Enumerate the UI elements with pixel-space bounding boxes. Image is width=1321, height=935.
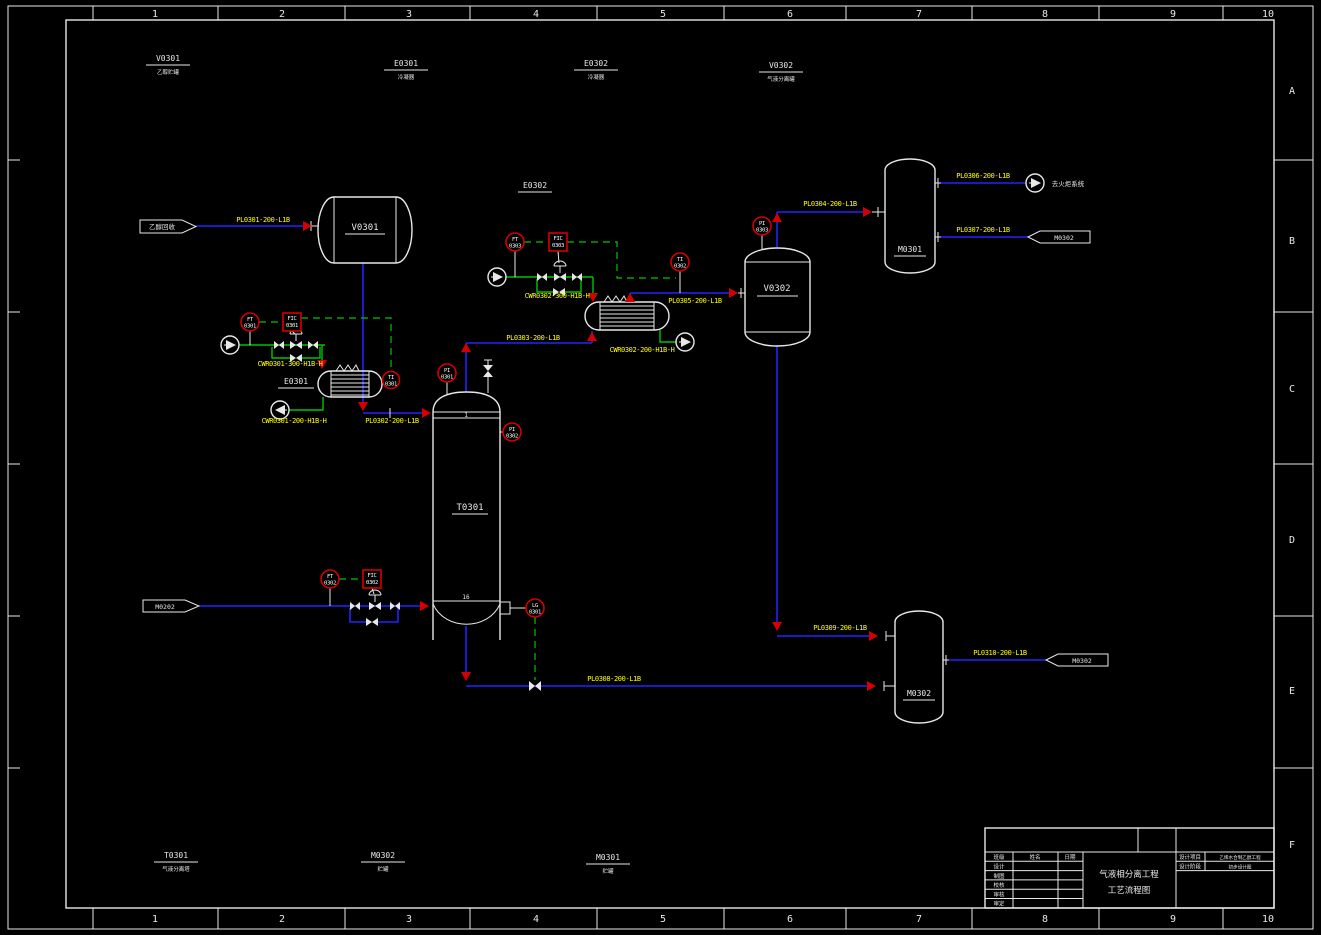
- instrument-fic0301-num: 0301: [286, 323, 298, 329]
- grid-col-label: 9: [1170, 9, 1176, 20]
- project-value: 乙烯水合制乙醇工程: [1219, 854, 1261, 861]
- index-m0301-tag: M0301: [596, 853, 620, 862]
- instrument-ti0301: TI 0301: [383, 372, 400, 389]
- grid-col-label: 7: [916, 914, 922, 925]
- titleblock-row-label: 制图: [993, 872, 1005, 880]
- cw-valve-manifold-e0302: [537, 261, 582, 296]
- index-m0301: M0301 贮罐: [586, 853, 630, 875]
- grid-row-label: D: [1289, 535, 1295, 546]
- index-e0302-name: 冷凝器: [588, 73, 605, 81]
- index-t0301: T0301 气液分离塔: [154, 851, 198, 873]
- instrument-fic0301: FIC 0301: [283, 313, 301, 331]
- instrument-pi0302-num: 0302: [506, 434, 518, 440]
- grid-row-label: E: [1289, 686, 1295, 697]
- pipe-label-pl0305: PL0305-200-L1B: [668, 297, 722, 305]
- connector-m0202: M0202: [143, 600, 199, 612]
- pid-canvas: 1 2 3 4 5 6 7 8 9 10 1 2 3 4 5 6 7 8 9 1…: [0, 0, 1321, 935]
- connector-m0302-bottom: M0302: [1046, 654, 1108, 666]
- grid-col-label: 4: [533, 914, 539, 925]
- flow-arrows: [303, 207, 878, 691]
- index-m0302: M0302 贮罐: [361, 851, 405, 873]
- instrument-lg0301-func: LG: [532, 603, 538, 609]
- vessel-v0301: V0301: [311, 197, 412, 263]
- index-e0301: E0301 冷凝器: [384, 59, 428, 81]
- connector-feed-top: 乙醇回收: [140, 220, 196, 233]
- sheet-frame: 1 2 3 4 5 6 7 8 9 10 1 2 3 4 5 6 7 8 9 1…: [8, 6, 1313, 929]
- index-t0301-name: 气液分离塔: [162, 865, 190, 873]
- to-flare-label: 去火炬系统: [1052, 179, 1085, 188]
- titleblock-col-header-1: 班级: [993, 853, 1005, 861]
- pipe-label-pl0309: PL0309-200-L1B: [813, 624, 867, 632]
- grid-col-label: 4: [533, 9, 539, 20]
- instrument-pi0303-func: PI: [759, 221, 765, 227]
- index-e0302: E0302 冷凝器: [574, 59, 618, 81]
- grid-col-label: 3: [406, 9, 412, 20]
- instrument-pi0302: PI 0302: [503, 423, 521, 441]
- pipe-label-pl0302: PL0302-200-L1B: [365, 417, 419, 425]
- title-block: 班级 姓名 日期 设计 制图 校核 审核 审定 气液相分离工程 工艺流程图 设计…: [985, 828, 1274, 908]
- instrument-ti0302: TI 0302: [671, 253, 689, 271]
- grid-col-label: 5: [660, 9, 666, 20]
- pid-drawing-sheet: 1 2 3 4 5 6 7 8 9 10 1 2 3 4 5 6 7 8 9 1…: [0, 0, 1321, 935]
- connector-m0202-label: M0202: [155, 603, 175, 611]
- pipe-label-pl0308: PL0308-200-L1B: [587, 675, 641, 683]
- index-v0301-name: 乙醇贮罐: [157, 68, 180, 76]
- vessel-v0302: V0302: [738, 248, 810, 346]
- instrument-ft0302-func: FT: [327, 574, 334, 580]
- vessel-v0301-tag: V0301: [351, 223, 378, 233]
- pipe-label-cwr0301-return: CWR0301-200-H1B-H: [262, 417, 327, 425]
- cw-supply-symbol-e0302: [488, 268, 506, 286]
- index-m0302-name: 贮罐: [377, 865, 389, 873]
- titleblock-row-label: 设计: [993, 863, 1005, 871]
- grid-col-label: 5: [660, 914, 666, 925]
- instrument-ft0301: FT 0301: [241, 313, 259, 331]
- column-t0301-tag: T0301: [456, 503, 483, 513]
- grid-col-label: 10: [1262, 914, 1274, 925]
- index-e0301-tag: E0301: [394, 59, 418, 68]
- instrument-ft0301-num: 0301: [244, 324, 256, 330]
- vessel-v0302-tag: V0302: [763, 284, 790, 294]
- tray-number-top: 1: [464, 412, 468, 419]
- grid-col-label: 2: [279, 9, 285, 20]
- instrument-lg0301-num: 0301: [529, 610, 541, 616]
- grid-col-label: 6: [787, 914, 793, 925]
- pipe-label-cwr0302-return: CWR0302-200-H1B-H: [610, 346, 675, 354]
- index-v0302: V0302 气液分离罐: [759, 61, 803, 83]
- drawing-title-line1: 气液相分离工程: [1099, 869, 1159, 880]
- cw-return-symbol-e0302: [676, 333, 694, 351]
- instrument-ft0302-num: 0302: [324, 581, 336, 587]
- titleblock-col-header-3: 日期: [1064, 854, 1076, 861]
- instrument-pi0301: PI 0301: [438, 364, 456, 382]
- pipe-label-pl0306: PL0306-200-L1B: [956, 172, 1010, 180]
- instrument-signal-lines: [259, 242, 676, 680]
- pipe-label-cwr0302-supply: CWR0302-300-H1B-H: [525, 292, 590, 300]
- exchanger-e0302-tag: E0302: [523, 181, 547, 190]
- instrument-fic0301-func: FIC: [287, 316, 296, 322]
- grid-row-label: C: [1289, 384, 1295, 395]
- vessel-m0302: M0302: [884, 611, 949, 723]
- vessel-m0301-tag: M0301: [898, 245, 922, 254]
- grid-col-label: 8: [1042, 914, 1048, 925]
- pipe-label-pl0307: PL0307-200-L1B: [956, 226, 1010, 234]
- grid-row-label: B: [1289, 236, 1295, 247]
- grid-col-label: 2: [279, 914, 285, 925]
- drawing-title-line2: 工艺流程图: [1108, 885, 1151, 896]
- instrument-fic0303-num: 0303: [552, 243, 564, 249]
- instrument-ft0303: FT 0303: [506, 233, 524, 251]
- exchanger-e0302: E0302: [518, 181, 669, 330]
- cooling-water-lines: [239, 242, 676, 680]
- tray-number-bottom: 16: [462, 594, 470, 601]
- instrument-ti0302-num: 0302: [674, 264, 686, 270]
- connector-m0302-bottom-label: M0302: [1072, 657, 1092, 665]
- grid-col-label: 6: [787, 9, 793, 20]
- bottoms-control-valve: [529, 681, 541, 691]
- cw-supply-symbol-e0301: [221, 336, 239, 354]
- equipment-index-labels: V0301 乙醇贮罐 E0301 冷凝器 E0302 冷凝器 V0302 气液分…: [146, 54, 803, 875]
- grid-col-label: 7: [916, 9, 922, 20]
- vent-coil-icon: [604, 296, 627, 302]
- stage-value: 初步设计图: [1229, 864, 1252, 871]
- grid-col-label: 1: [152, 9, 158, 20]
- index-t0301-tag: T0301: [164, 851, 188, 860]
- index-v0301: V0301 乙醇贮罐: [146, 54, 190, 76]
- project-label: 设计项目: [1179, 853, 1201, 861]
- instrument-ft0302: FT 0302: [321, 570, 339, 588]
- instrument-ti0302-func: TI: [677, 257, 683, 263]
- instrument-fic0303-func: FIC: [553, 236, 562, 242]
- grid-col-label: 8: [1042, 9, 1048, 20]
- index-e0301-name: 冷凝器: [398, 73, 415, 81]
- grid-col-label: 1: [152, 914, 158, 925]
- titleblock-row-label: 审定: [993, 900, 1005, 908]
- instrument-pi0303-num: 0303: [756, 228, 768, 234]
- instrument-fic0303: FIC 0303: [549, 233, 567, 251]
- pipe-label-pl0303: PL0303-200-L1B: [506, 334, 560, 342]
- instrument-fic0302: FIC 0302: [363, 570, 381, 588]
- vent-coil-icon: [336, 365, 359, 371]
- index-v0302-name: 气液分离罐: [767, 75, 795, 83]
- titleblock-row-label: 校核: [993, 881, 1005, 889]
- instrument-pi0301-num: 0301: [441, 375, 453, 381]
- connector-m0302-top-label: M0302: [1054, 234, 1074, 242]
- instrument-ti0301-num: 0301: [385, 382, 397, 388]
- index-e0302-tag: E0302: [584, 59, 608, 68]
- exchanger-e0301: E0301: [278, 365, 382, 397]
- index-m0301-name: 贮罐: [602, 867, 614, 875]
- pipe-label-pl0310: PL0310-200-L1B: [973, 649, 1027, 657]
- instrument-pi0302-func: PI: [509, 427, 515, 433]
- instrument-ti0301-func: TI: [388, 375, 394, 381]
- feed-valve-manifold-t0301: [350, 590, 400, 626]
- offpage-connectors: 乙醇回收 M0202 M0302 M0302: [140, 220, 1108, 666]
- exchanger-e0301-tag: E0301: [284, 377, 308, 386]
- vessel-m0301: M0301: [872, 159, 941, 273]
- pipe-label-cwr0301-supply: CWR0301-300-H1B-H: [258, 360, 323, 368]
- pipe-label-pl0304: PL0304-200-L1B: [803, 200, 857, 208]
- to-flare-symbol: 去火炬系统: [1026, 174, 1085, 192]
- index-m0302-tag: M0302: [371, 851, 395, 860]
- grid-col-label: 10: [1262, 9, 1274, 20]
- connector-m0302-top: M0302: [1028, 231, 1090, 243]
- instrument-pi0303: PI 0303: [753, 217, 771, 235]
- connector-feed-top-label: 乙醇回收: [149, 222, 176, 231]
- stage-label: 设计阶段: [1179, 863, 1202, 871]
- instrument-ft0303-func: FT: [512, 237, 519, 243]
- titleblock-col-header-2: 姓名: [1029, 853, 1040, 861]
- vessel-m0302-tag: M0302: [907, 689, 931, 698]
- instrument-ft0303-num: 0303: [509, 244, 521, 250]
- index-v0301-tag: V0301: [156, 54, 180, 63]
- utility-flow-symbols: 去火炬系统: [221, 174, 1085, 419]
- grid-row-label: A: [1289, 86, 1295, 97]
- index-v0302-tag: V0302: [769, 61, 793, 70]
- column-t0301: 1 16 T0301: [390, 360, 510, 640]
- instrument-ft0301-func: FT: [247, 317, 254, 323]
- instrument-fic0302-func: FIC: [367, 573, 376, 579]
- vent-valve: [483, 360, 493, 393]
- grid-col-label: 9: [1170, 914, 1176, 925]
- grid-col-label: 3: [406, 914, 412, 925]
- pipe-label-pl0301: PL0301-200-L1B: [236, 216, 290, 224]
- titleblock-row-label: 审核: [993, 890, 1005, 898]
- instrument-fic0302-num: 0302: [366, 580, 378, 586]
- instrument-lg0301: LG 0301: [526, 599, 544, 617]
- instrument-pi0301-func: PI: [444, 368, 450, 374]
- grid-row-label: F: [1289, 840, 1295, 851]
